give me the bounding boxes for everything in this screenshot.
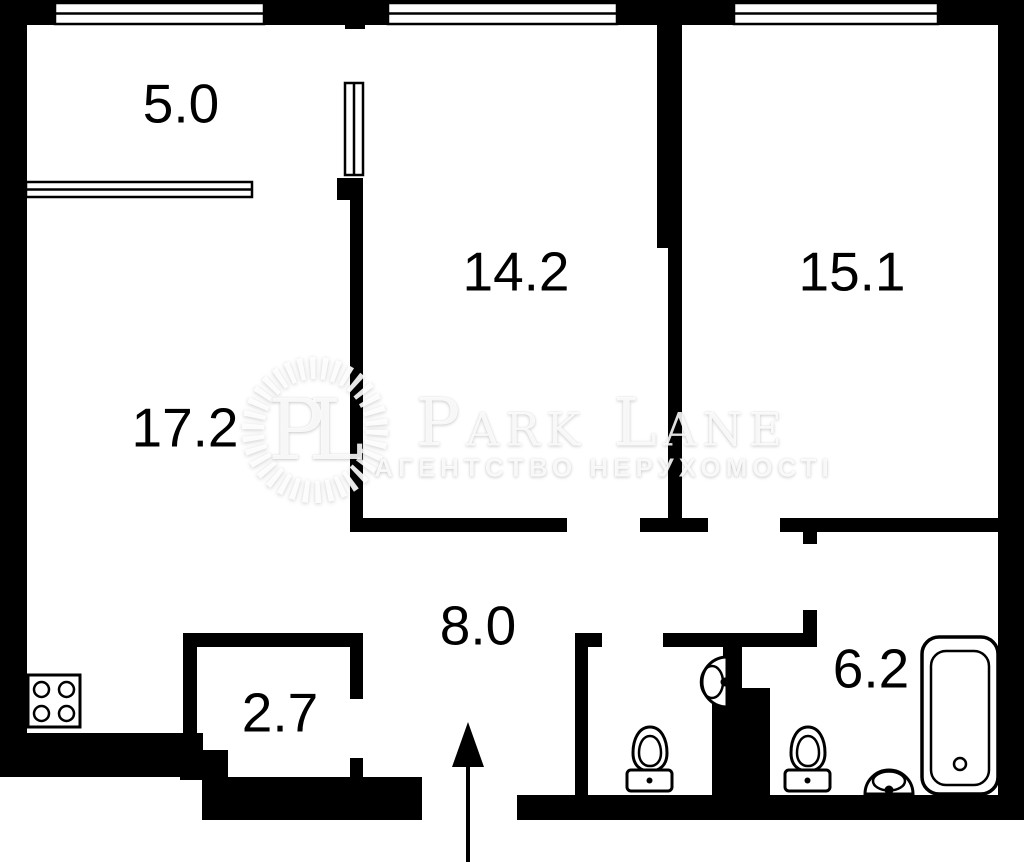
stove-icon <box>28 675 80 727</box>
window-icon <box>734 3 938 24</box>
wall <box>640 518 708 532</box>
wall <box>588 633 602 647</box>
toilet-icon <box>627 727 672 791</box>
toilet-icon <box>785 727 830 791</box>
wall <box>998 0 1024 820</box>
wall <box>350 647 363 699</box>
room-area-label-room-middle: 14.2 <box>462 245 569 300</box>
window-icon <box>388 3 617 24</box>
wall <box>345 20 365 29</box>
wall <box>575 633 588 795</box>
room-area-label-living-room: 17.2 <box>131 401 238 456</box>
floor-plan: 5.0 14.2 15.1 17.2 8.0 2.7 6.2 PL Park L… <box>0 0 1024 862</box>
bathtub-icon <box>922 637 998 794</box>
wall <box>657 25 682 248</box>
wall <box>517 795 1024 820</box>
room-area-label-room-right: 15.1 <box>798 245 905 300</box>
wall <box>803 532 817 544</box>
wall <box>0 733 203 777</box>
window-icon <box>345 83 363 175</box>
wall <box>350 518 567 532</box>
room-area-label-balcony: 5.0 <box>143 77 219 132</box>
wash-basin-icon <box>701 657 730 707</box>
wall <box>183 633 363 647</box>
wall <box>780 518 998 532</box>
room-area-label-closet: 2.7 <box>242 686 318 741</box>
wall <box>180 750 228 780</box>
window-icon <box>26 182 252 197</box>
wall <box>202 777 422 820</box>
wall <box>0 0 27 777</box>
room-area-label-bathroom: 6.2 <box>833 642 909 697</box>
wall <box>668 248 682 520</box>
wash-basin-icon <box>865 770 913 795</box>
room-area-label-hallway: 8.0 <box>440 599 516 654</box>
entrance-arrow-icon <box>452 722 484 862</box>
window-icon <box>55 3 264 24</box>
wall <box>350 178 363 532</box>
